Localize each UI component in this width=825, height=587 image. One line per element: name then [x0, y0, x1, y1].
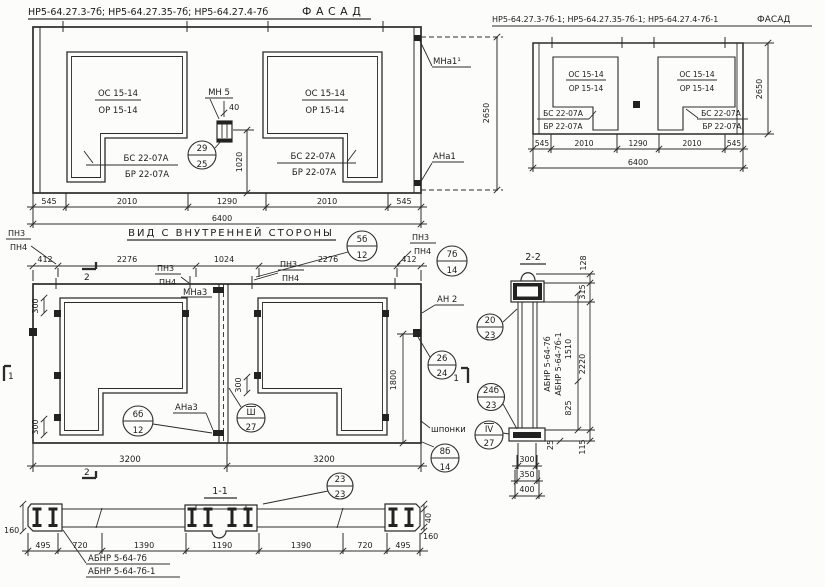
- section-marker-2-bottom: 2: [82, 468, 96, 478]
- edge-embed-left: [29, 328, 37, 336]
- dim-label: 1800: [389, 370, 398, 390]
- dim-label: 40: [229, 103, 239, 112]
- svg-text:1: 1: [8, 372, 14, 382]
- edge-embed-right: [413, 329, 421, 337]
- inner-bottom-ext: [33, 443, 421, 472]
- dim-label: 315: [578, 284, 587, 299]
- facade-mirror-title: НР5-64.27.3-7б-1; НР5-64.27.35-7б-1; НР5…: [492, 15, 718, 24]
- anchor-label-pn3: ПН3: [157, 264, 174, 273]
- window-mark-label: ОР 15-14: [305, 106, 344, 116]
- dim-label: 825: [564, 400, 573, 415]
- dim-label: 25: [546, 440, 555, 450]
- callout-num: 5б: [357, 235, 368, 245]
- callout-num: 8б: [440, 447, 451, 457]
- window-mark-label: ОС 15-14: [305, 89, 345, 99]
- dim-label: 160: [4, 526, 19, 535]
- anchor-label-pn3: ПН3: [280, 260, 297, 269]
- dim-label: 2010: [317, 197, 337, 206]
- callout-num: 20: [485, 316, 496, 326]
- window-mark-label: ОР 15-14: [98, 106, 137, 116]
- embed-ana3-mark: [213, 430, 224, 436]
- dim-label: 720: [357, 541, 372, 550]
- dim-label: 40: [424, 513, 433, 523]
- cage-label: АБНР 5-64-7б: [88, 554, 147, 564]
- callout-sheet: 23: [335, 490, 346, 500]
- callout-num: Ш: [246, 408, 255, 418]
- section-2-2-title: 2-2: [525, 252, 541, 263]
- dim-label: 300: [31, 419, 40, 434]
- inner-opening-left: [60, 298, 187, 435]
- section-marker-1-left: 1: [4, 366, 14, 382]
- callout-num: 29: [197, 144, 208, 154]
- anchor-label-pn3: ПН3: [8, 229, 25, 238]
- sill-mark-label: БС 22-07А: [291, 152, 336, 162]
- dim-label: 2010: [682, 139, 701, 148]
- embed-mna3-mark: [213, 287, 224, 293]
- sill-mark-label: БС 22-07А: [701, 109, 742, 118]
- dim-label: 495: [395, 541, 410, 550]
- dim-label: 3200: [119, 455, 141, 465]
- section-2-2-web: [518, 302, 537, 428]
- anchor-label-pn4: ПН4: [159, 278, 176, 287]
- dim-label: 1024: [214, 255, 234, 264]
- callout-num: 24б: [483, 386, 499, 396]
- callout-sheet: 27: [484, 439, 495, 449]
- rebar-profiles: [33, 508, 414, 528]
- section-1-1-title: 1-1: [212, 486, 228, 497]
- dim-label: 2650: [755, 79, 764, 99]
- embed-an2-label: АН 2: [437, 295, 457, 305]
- dim-label: 545: [727, 139, 742, 148]
- inner-panel: [33, 284, 421, 443]
- window-mark-label: ОС 15-14: [98, 89, 138, 99]
- sill-mark-label: БС 22-07А: [124, 154, 169, 164]
- dim-label: 350: [519, 470, 534, 479]
- callout-sheet: 14: [447, 266, 458, 276]
- shponki-label: шпонки: [431, 425, 466, 435]
- callout-num: 23: [335, 475, 346, 485]
- cage-label: АБНР 5-64-7б-1: [88, 567, 155, 577]
- facade-mirror-view-label: ФАСАД: [757, 15, 790, 25]
- anchor-label-pn4: ПН4: [414, 247, 431, 256]
- dim-label: 128: [579, 255, 588, 270]
- dim-label: 1020: [235, 152, 244, 172]
- dim-label: 545: [41, 197, 56, 206]
- dim-label: 720: [72, 541, 87, 550]
- dim-label: 300: [519, 455, 534, 464]
- section-1-1: 1-1 23 23 160 40 160 495 720 1390: [4, 473, 438, 577]
- drawing-sheet: НР5-64.27.3-7б; НР5-64.27.35-7б; НР5-64.…: [0, 0, 825, 587]
- section-2-2: 2-2 20 23 24б 23 IV 27 АБНР 5-64-7б АБНР…: [475, 252, 595, 499]
- callout-num: 6б: [133, 410, 144, 420]
- embed-mna1-label: МНа1¹: [433, 57, 461, 67]
- svg-text:2: 2: [84, 273, 90, 283]
- callout-num: 26: [437, 354, 448, 364]
- embed-mn5-label: МН 5: [208, 88, 230, 98]
- dim-label: 1510: [564, 339, 573, 359]
- dim-label: 400: [519, 485, 534, 494]
- sill-mark-label: БР 22-07А: [292, 168, 336, 178]
- dim-label: 2276: [117, 255, 137, 264]
- lifting-loop: [521, 273, 535, 281]
- dim-label: 1190: [212, 541, 232, 550]
- callout-sheet: 12: [357, 251, 368, 261]
- dim-label: 412: [401, 255, 416, 264]
- dim-label: 115: [578, 439, 587, 454]
- section-marker-2-top: 2: [82, 262, 96, 283]
- embed-ana1-mark: [414, 180, 421, 186]
- dim-label: 2220: [578, 354, 587, 374]
- dim-label: 2010: [117, 197, 137, 206]
- facade-main-title: НР5-64.27.3-7б; НР5-64.27.35-7б; НР5-64.…: [28, 7, 268, 18]
- cage-label: АБНР 5-64-7б: [543, 336, 552, 391]
- sill-mark-label: БР 22-07А: [544, 122, 584, 131]
- anchor-label-pn3: ПН3: [412, 233, 429, 242]
- dim-label: 160: [423, 532, 438, 541]
- callout-sheet: 25: [197, 160, 208, 170]
- callout-num: 7б: [447, 250, 458, 260]
- dim-label: 1390: [134, 541, 154, 550]
- dim-label: 2650: [482, 103, 491, 123]
- frame-anchor-marks: [54, 310, 389, 421]
- callout-sheet: 23: [485, 331, 496, 341]
- sill-mark-label: БР 22-07А: [125, 170, 169, 180]
- callout-sheet: 23: [486, 401, 497, 411]
- callout-num: IV: [485, 425, 494, 435]
- window-mark-label: ОР 15-14: [569, 84, 604, 93]
- dim-label: 6400: [628, 158, 648, 167]
- drawing-canvas: НР5-64.27.3-7б; НР5-64.27.35-7б; НР5-64.…: [0, 0, 825, 587]
- inner-view-title: ВИД С ВНУТРЕННЕЙ СТОРОНЫ: [128, 226, 334, 239]
- embed-ana3-label: АНа3: [175, 403, 198, 413]
- dim-label: 6400: [212, 214, 232, 223]
- dim-label: 300: [31, 298, 40, 313]
- facade-mirror: НР5-64.27.3-7б-1; НР5-64.27.35-7б-1; НР5…: [492, 15, 812, 172]
- callout-sheet: 24: [437, 369, 448, 379]
- dim-label: 412: [37, 255, 52, 264]
- dim-label: 1290: [217, 197, 237, 206]
- embed-ana1-label: АНа1: [433, 152, 456, 162]
- anchor-label-pn4: ПН4: [10, 243, 27, 252]
- inner-view: ВИД С ВНУТРЕННЕЙ СТОРОНЫ ПН3 ПН4 412 227…: [4, 226, 468, 478]
- window-mark-label: ОР 15-14: [680, 84, 715, 93]
- window-mark-label: ОС 15-14: [568, 70, 604, 79]
- svg-text:2: 2: [84, 468, 90, 478]
- dim-label: 1290: [628, 139, 647, 148]
- inner-opening-right: [258, 298, 387, 435]
- svg-text:1: 1: [453, 374, 459, 384]
- facade-main: НР5-64.27.3-7б; НР5-64.27.35-7б; НР5-64.…: [27, 5, 503, 228]
- cage-label: АБНР 5-64-7б-1: [554, 332, 563, 395]
- dim-label: 545: [535, 139, 550, 148]
- dim-label: 3200: [313, 455, 335, 465]
- sill-mark-label: БР 22-07А: [703, 122, 743, 131]
- dim-label: 2010: [574, 139, 593, 148]
- center-embed-mark: [633, 101, 640, 108]
- window-mark-label: ОС 15-14: [679, 70, 715, 79]
- callout-sheet: 14: [440, 463, 451, 473]
- callout-sheet: 12: [133, 426, 144, 436]
- facade-main-view-label: ФАСАД: [302, 5, 365, 18]
- dim-label: 300: [234, 377, 243, 392]
- inner-top-marks: [56, 276, 395, 289]
- callout-sheet: 27: [246, 423, 257, 433]
- dim-label: 1390: [291, 541, 311, 550]
- flange-webs: [62, 508, 385, 528]
- dim-label: 495: [35, 541, 50, 550]
- anchor-label-pn4: ПН4: [282, 274, 299, 283]
- dim-label: 545: [396, 197, 411, 206]
- sill-mark-label: БС 22-07А: [543, 109, 584, 118]
- embed-mna1-mark: [414, 35, 421, 41]
- embed-mna3-label: МНа3: [183, 288, 207, 298]
